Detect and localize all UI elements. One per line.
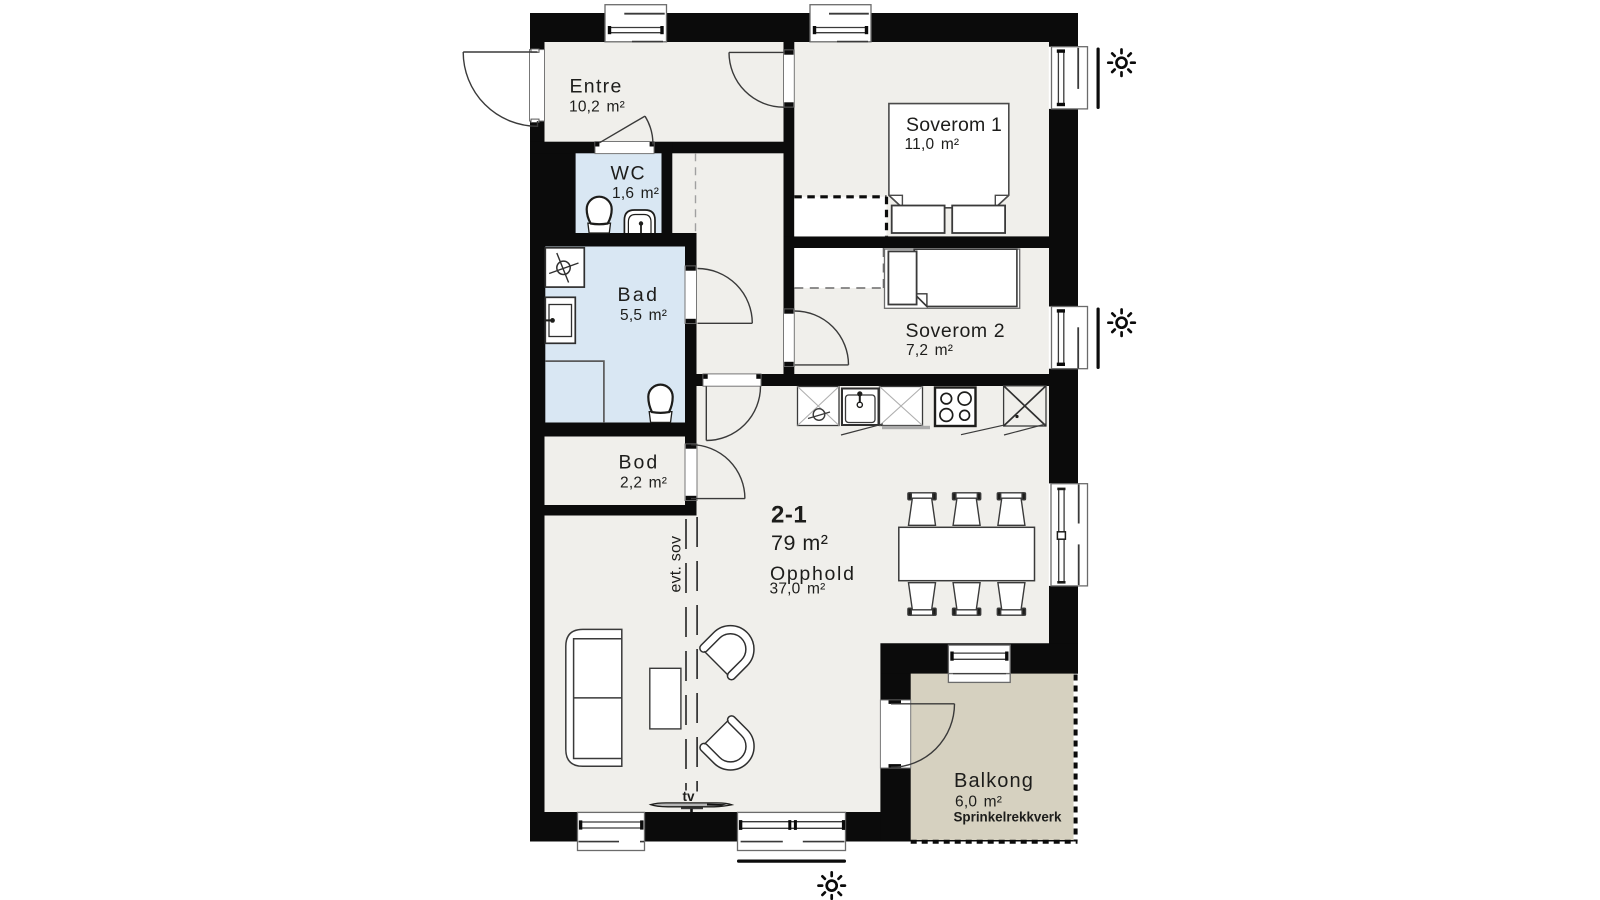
svg-text:7,2 m²: 7,2 m² <box>906 342 953 359</box>
svg-text:5,5 m²: 5,5 m² <box>620 307 667 324</box>
svg-text:WC: WC <box>611 163 647 185</box>
svg-text:2,2 m²: 2,2 m² <box>620 475 667 492</box>
svg-text:6,0 m²: 6,0 m² <box>955 794 1002 811</box>
svg-text:10,2 m²: 10,2 m² <box>569 98 625 115</box>
svg-text:Bad: Bad <box>618 284 660 306</box>
svg-text:37,0 m²: 37,0 m² <box>770 581 826 598</box>
svg-text:Soverom 1: Soverom 1 <box>906 114 1002 136</box>
svg-text:1,6 m²: 1,6 m² <box>612 185 659 202</box>
svg-text:Balkong: Balkong <box>954 770 1034 792</box>
svg-text:11,0 m²: 11,0 m² <box>905 136 960 153</box>
svg-text:Entre: Entre <box>570 76 623 98</box>
svg-text:79 m²: 79 m² <box>771 531 828 555</box>
svg-text:Bod: Bod <box>619 452 660 474</box>
svg-text:tv: tv <box>683 789 695 804</box>
svg-text:evt. sov: evt. sov <box>668 536 685 593</box>
svg-text:2-1: 2-1 <box>771 502 807 529</box>
svg-text:Soverom 2: Soverom 2 <box>906 320 1006 342</box>
svg-text:Sprinkelrekkverk: Sprinkelrekkverk <box>954 810 1062 825</box>
